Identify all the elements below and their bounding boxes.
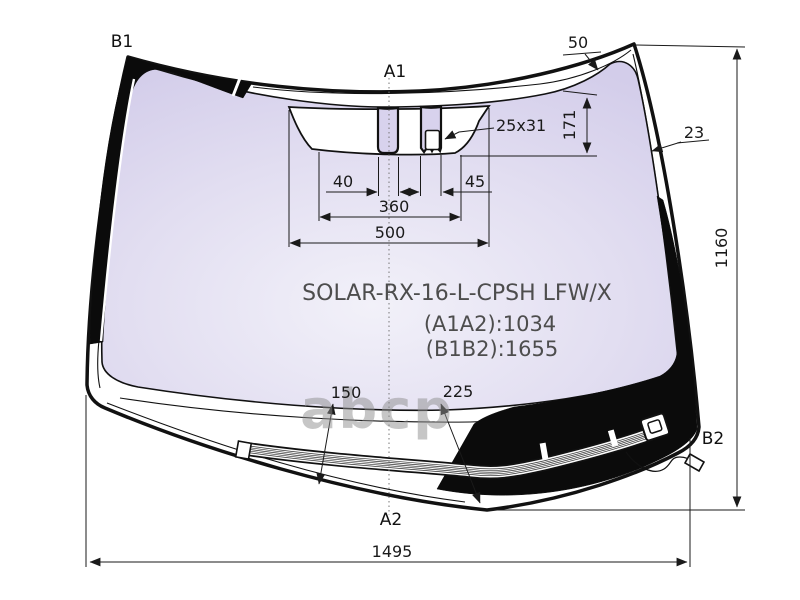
label-a1: A1 xyxy=(384,62,406,82)
watermark-text: abcp xyxy=(300,378,454,441)
sensor-cutout-group xyxy=(289,106,489,155)
dim-23-label: 23 xyxy=(684,123,704,142)
dim-25x31-label: 25x31 xyxy=(496,116,546,135)
connector-plug xyxy=(685,454,704,471)
label-b2: B2 xyxy=(702,429,724,449)
windshield-diagram: abcp SOLAR-RX-16-L-CPSH LFW/X (A1A2):103… xyxy=(0,0,800,600)
dim-225-label: 225 xyxy=(443,382,474,401)
dim-500-label: 500 xyxy=(375,223,406,242)
dim-45-label: 45 xyxy=(465,172,485,191)
diagram-canvas: abcp SOLAR-RX-16-L-CPSH LFW/X (A1A2):103… xyxy=(0,0,800,600)
dim-171-label: 171 xyxy=(560,110,579,141)
dim-150-label: 150 xyxy=(331,383,362,402)
camera-bracket-left xyxy=(378,108,398,153)
dim-50-underline xyxy=(563,52,601,55)
label-b1: B1 xyxy=(111,32,133,52)
heater-band-end-cap xyxy=(236,441,252,459)
dim-1495-label: 1495 xyxy=(372,542,413,561)
dim-1160-ext-top xyxy=(636,45,745,47)
label-a2: A2 xyxy=(380,510,402,530)
part-code: SOLAR-RX-16-L-CPSH LFW/X xyxy=(302,281,612,306)
dim-360-label: 360 xyxy=(379,197,410,216)
dim-1160-label: 1160 xyxy=(712,228,731,269)
part-dim-b1b2: (B1B2):1655 xyxy=(426,337,558,361)
dim-40-label: 40 xyxy=(333,172,353,191)
part-dim-a1a2: (A1A2):1034 xyxy=(424,312,556,336)
dim-50-label: 50 xyxy=(568,33,588,52)
sensor-window xyxy=(426,131,440,150)
